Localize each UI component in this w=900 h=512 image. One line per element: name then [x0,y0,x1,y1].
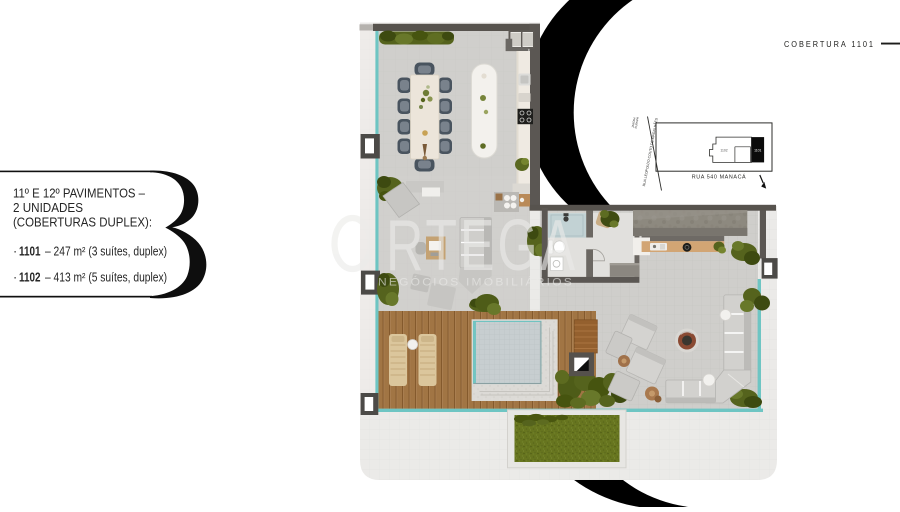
svg-text:RTEGA: RTEGA [386,206,578,286]
svg-text:·: · [13,271,17,285]
svg-text:– 247 m² (3 suítes, duplex): – 247 m² (3 suítes, duplex) [45,245,167,259]
svg-text:COBERTURA 1101: COBERTURA 1101 [784,39,875,49]
svg-text:(COBERTURAS DUPLEX):: (COBERTURAS DUPLEX): [13,215,152,230]
svg-text:1102: 1102 [720,148,727,152]
svg-text:·: · [13,245,17,259]
svg-text:1101: 1101 [19,245,41,259]
svg-text:2 UNIDADES: 2 UNIDADES [13,200,83,215]
svg-text:1101: 1101 [754,149,761,153]
svg-text:RUA 540 MANACÁ: RUA 540 MANACÁ [692,174,747,181]
svg-text:11º E 12º PAVIMENTOS –: 11º E 12º PAVIMENTOS – [13,186,146,201]
svg-text:NEGÓCIOS IMOBILIÁRIOS: NEGÓCIOS IMOBILIÁRIOS [378,276,574,289]
svg-text:1102: 1102 [19,271,41,285]
svg-text:– 413 m² (5 suítes, duplex): – 413 m² (5 suítes, duplex) [45,271,167,285]
